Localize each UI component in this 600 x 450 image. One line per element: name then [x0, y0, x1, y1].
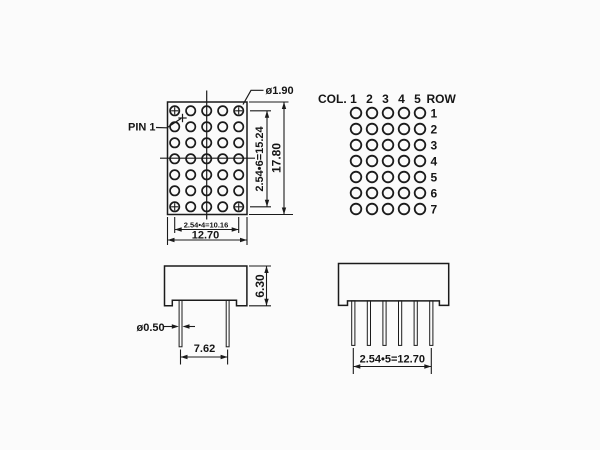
- svg-text:7.62: 7.62: [194, 343, 215, 355]
- svg-text:2: 2: [431, 123, 438, 137]
- svg-text:17.80: 17.80: [270, 143, 284, 173]
- svg-text:12.70: 12.70: [192, 230, 220, 242]
- svg-text:3: 3: [431, 139, 438, 153]
- svg-text:1: 1: [431, 107, 438, 121]
- svg-text:2.54•6=15.24: 2.54•6=15.24: [254, 125, 266, 191]
- svg-text:2: 2: [366, 92, 373, 106]
- svg-text:1: 1: [350, 92, 357, 106]
- svg-text:5: 5: [431, 171, 438, 185]
- svg-text:ø0.50: ø0.50: [137, 322, 165, 334]
- svg-text:COL.: COL.: [318, 92, 347, 106]
- svg-text:3: 3: [382, 92, 389, 106]
- svg-text:PIN 1: PIN 1: [128, 122, 156, 134]
- svg-text:4: 4: [398, 92, 405, 106]
- svg-text:7: 7: [431, 203, 438, 217]
- svg-text:ø1.90: ø1.90: [266, 85, 294, 97]
- svg-text:2.54•4=10.16: 2.54•4=10.16: [184, 221, 229, 230]
- svg-text:5: 5: [414, 92, 421, 106]
- svg-text:6.30: 6.30: [253, 274, 267, 298]
- svg-text:6: 6: [431, 187, 438, 201]
- svg-text:2.54•5=12.70: 2.54•5=12.70: [360, 354, 425, 366]
- svg-text:4: 4: [431, 155, 438, 169]
- svg-text:ROW: ROW: [427, 92, 457, 106]
